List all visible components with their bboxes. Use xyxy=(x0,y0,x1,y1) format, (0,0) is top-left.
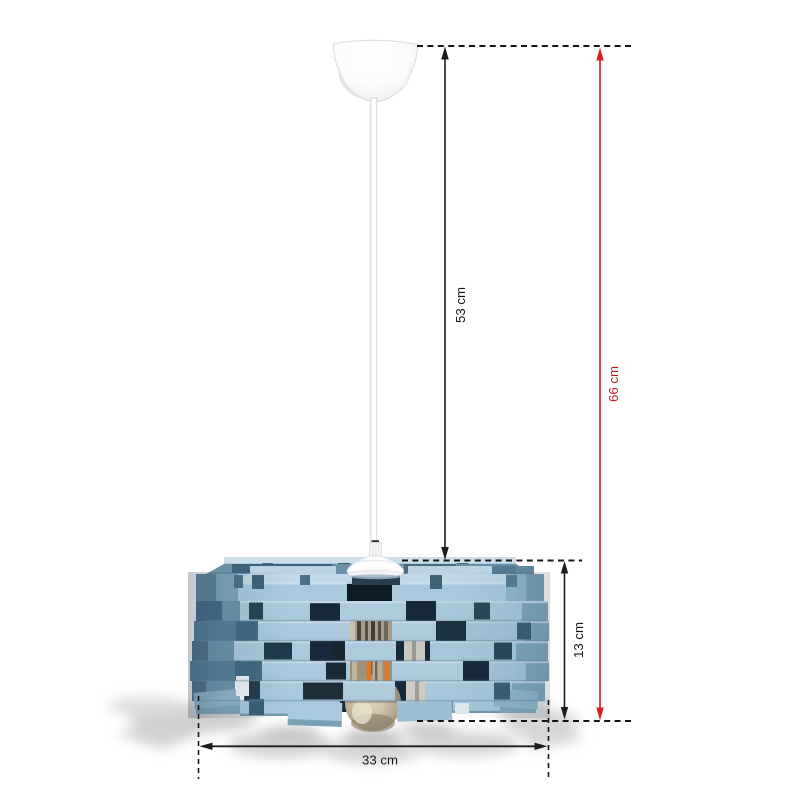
svg-text:66 cm: 66 cm xyxy=(606,366,621,402)
svg-text:33 cm: 33 cm xyxy=(362,753,398,768)
svg-text:13 cm: 13 cm xyxy=(571,622,586,658)
svg-text:53 cm: 53 cm xyxy=(453,287,468,323)
